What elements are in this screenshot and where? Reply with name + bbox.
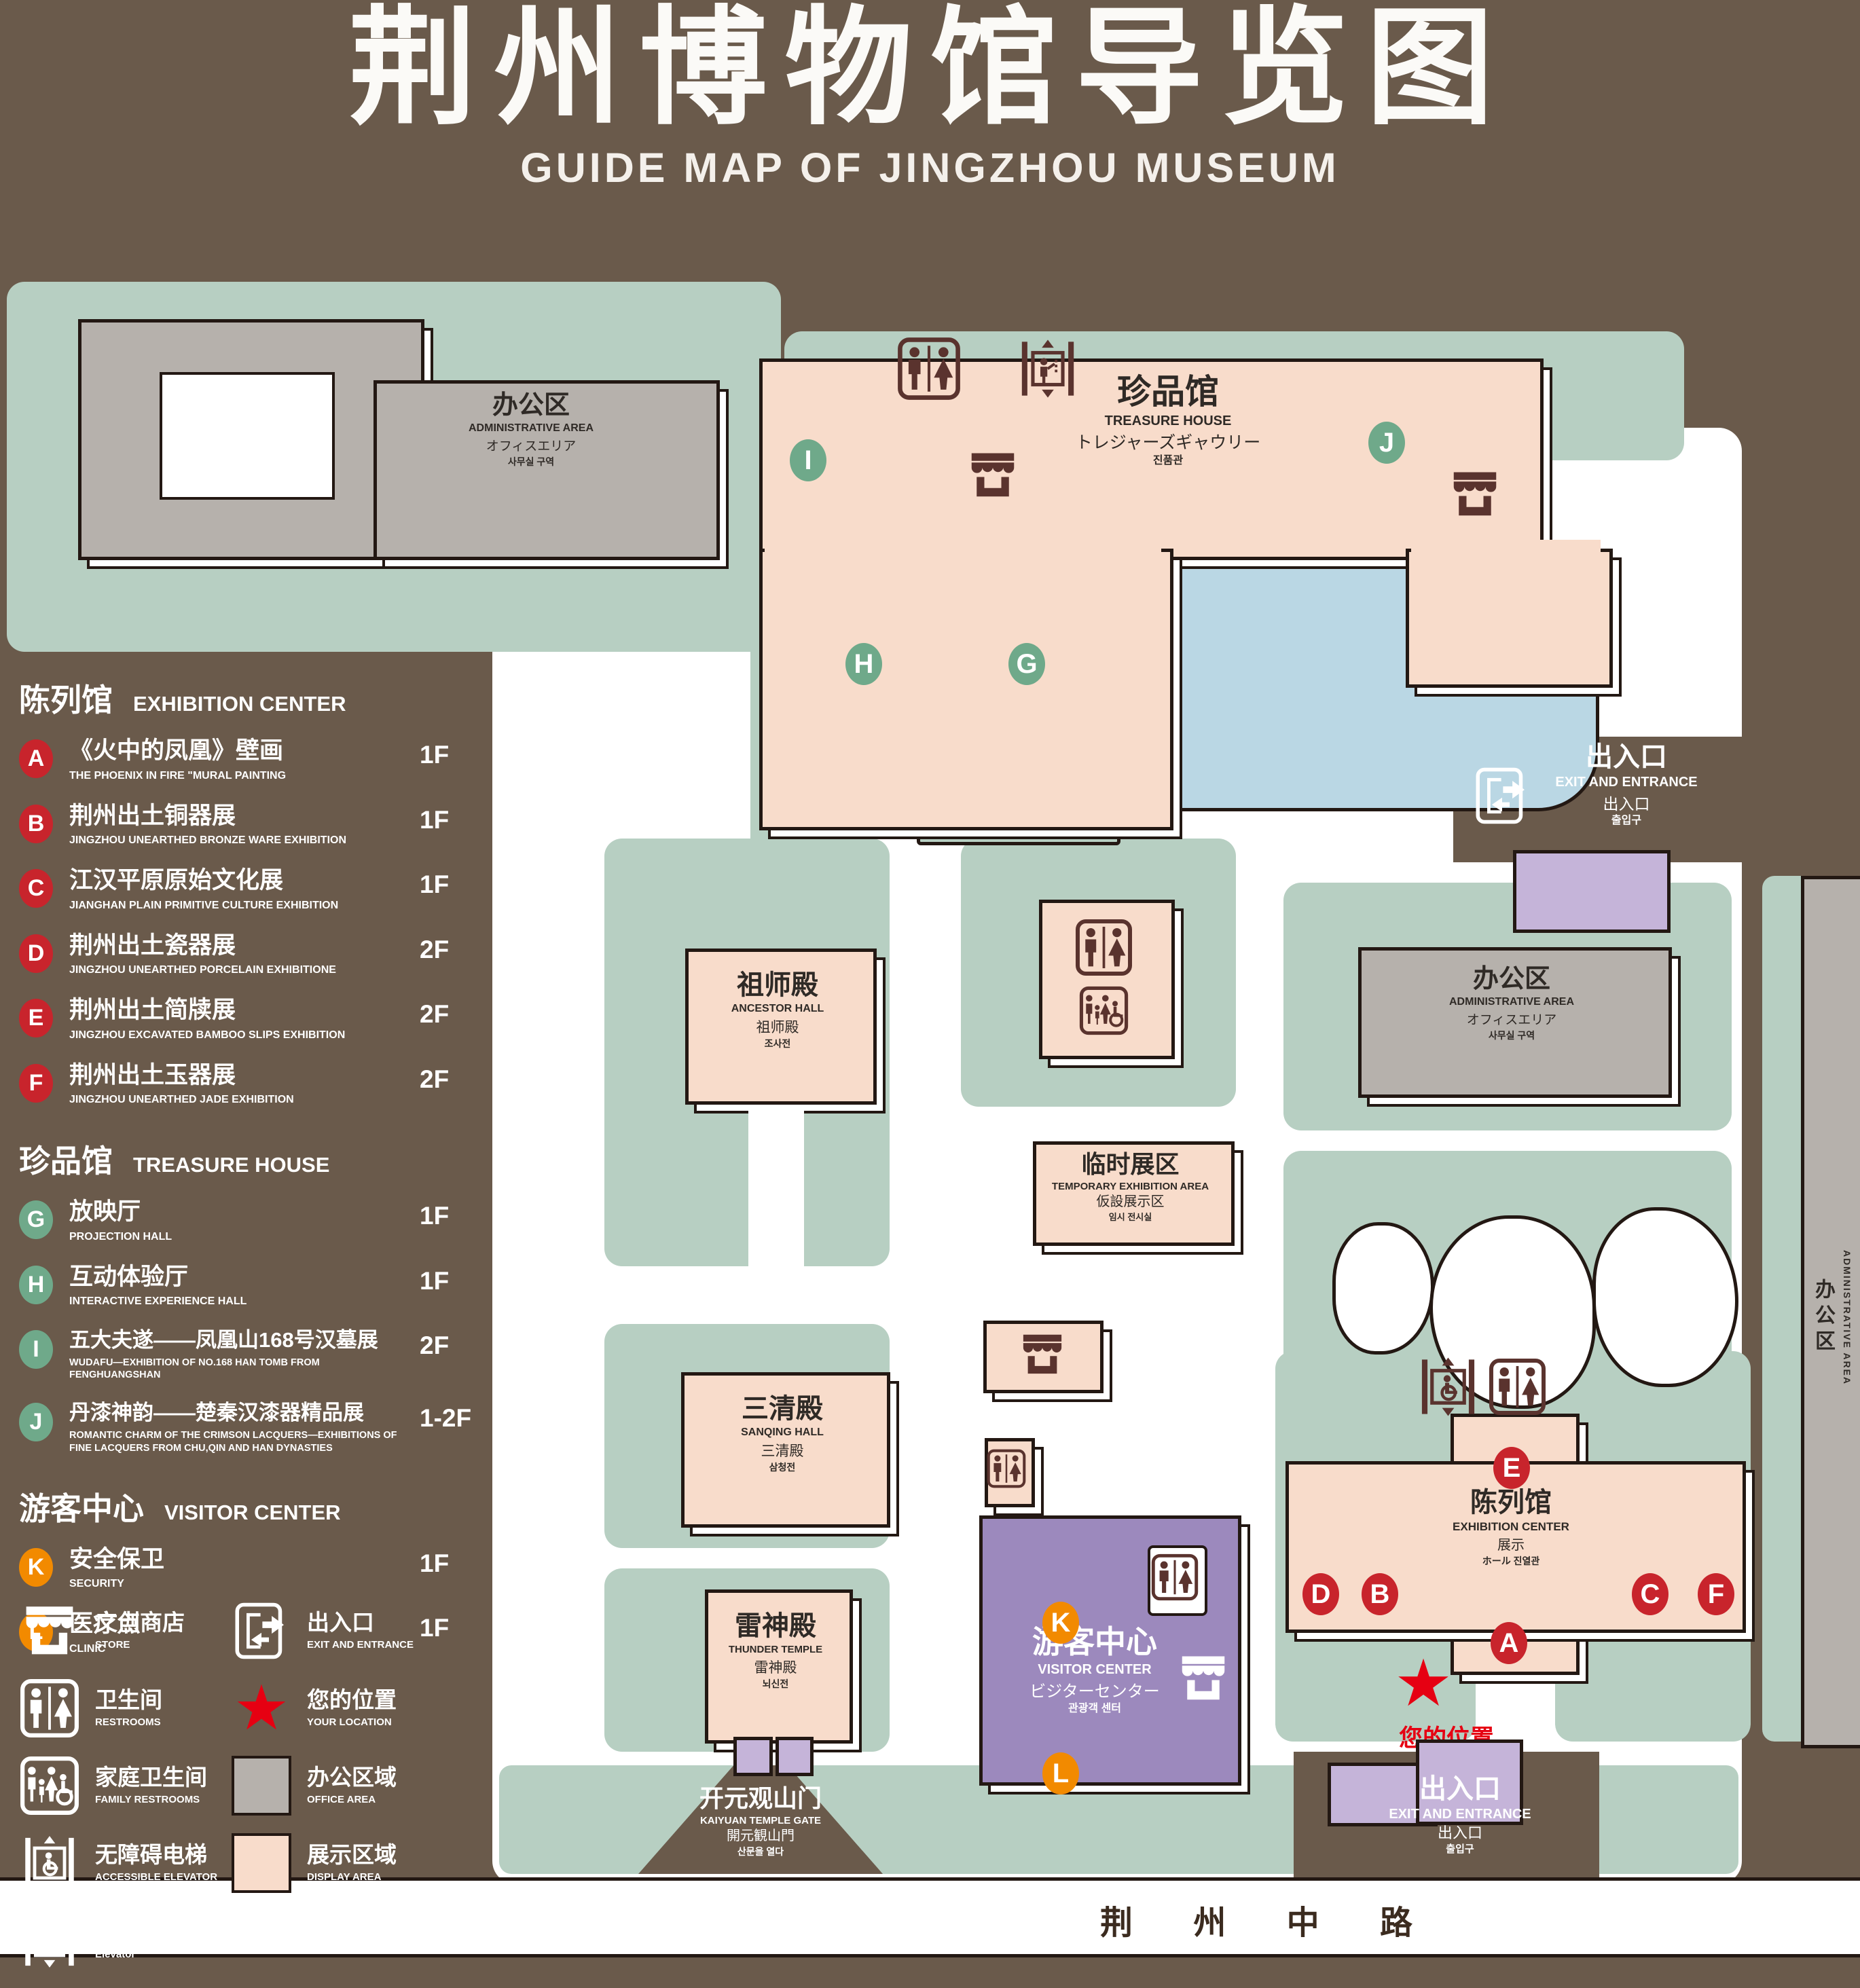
treasure-house-left-wing: [759, 549, 1173, 830]
marker-e: E: [19, 999, 53, 1037]
legend-symbol-store: 文创商店STORE: [19, 1597, 231, 1665]
restrooms-icon: [987, 1449, 1026, 1488]
legend-item-d: D 荆州出土瓷器展JINGZHOU UNEARTHED PORCELAIN EX…: [19, 933, 478, 978]
legend-item-k: K 安全保卫SECURITY 1F: [19, 1547, 478, 1591]
exit-right-building: [1513, 850, 1671, 933]
visitor-center-label: 游客中心 VISITOR CENTER ビジターセンター 관광객 센터: [986, 1624, 1203, 1716]
marker-k: K: [19, 1548, 53, 1587]
legend-item-b: B 荆州出土铜器展JINGZHOU UNEARTHED BRONZE WARE …: [19, 803, 478, 848]
store-icon: [19, 1600, 80, 1661]
legend-item-a: A 《火中的凤凰》壁画THE PHOENIX IN FIRE "MURAL PA…: [19, 738, 478, 783]
treasure-house-seam1: [765, 540, 1161, 560]
marker-d: D: [19, 934, 53, 973]
legend-item-g: G 放映厅PROJECTION HALL 1F: [19, 1199, 478, 1244]
map-marker-a: A: [1491, 1622, 1527, 1664]
floor-badge: 1-2F: [420, 1404, 478, 1433]
exit-icon: [231, 1600, 292, 1661]
legend-symbols: 文创商店STORE 出入口EXIT AND ENTRANCE 卫生间RESTRO…: [19, 1597, 488, 1974]
map-marker-k: K: [1042, 1602, 1079, 1644]
restrooms-icon: [19, 1678, 80, 1739]
map-marker-j: J: [1368, 422, 1405, 464]
page-title: 荆州博物馆导览图: [0, 1, 1860, 135]
marker-h: H: [19, 1266, 53, 1304]
legend-item-c: C 江汉平原原始文化展JIANGHAN PLAIN PRIMITIVE CULT…: [19, 868, 478, 913]
store-icon: [966, 448, 1020, 502]
accessible-elevator-icon: [1416, 1355, 1480, 1419]
exit-icon: [1472, 766, 1532, 826]
store-icon: [1176, 1651, 1230, 1706]
path-below-ancestor: [748, 1108, 804, 1319]
legend-section-treasure-house: 珍品馆 TREASURE HOUSE: [19, 1137, 478, 1181]
sanqing-hall-label: 三清殿 SANQING HALL 三清殿 삼청전: [685, 1393, 880, 1473]
gate-pillar-left: [733, 1737, 773, 1776]
legend-symbol-family-restrooms: 家庭卫生间FAMILY RESTROOMS: [19, 1752, 231, 1820]
map-marker-e: E: [1493, 1447, 1530, 1489]
legend-symbol-exit: 出入口EXIT AND ENTRANCE: [231, 1597, 481, 1665]
office-area-swatch: [231, 1755, 292, 1816]
ancestor-hall-label: 祖师殿 ANCESTOR HALL 祖师殿 조사전: [689, 970, 867, 1050]
store-icon: [1448, 467, 1502, 521]
display-area-swatch: [231, 1833, 292, 1894]
accessible-elevator-icon: [19, 1833, 80, 1894]
admin-right-label: 办公区 ADMINISTRATIVE AREA オフィスエリア 사무실 구역: [1362, 964, 1662, 1041]
floor-badge: 1F: [420, 1549, 478, 1578]
restrooms-icon: [1151, 1553, 1199, 1601]
marker-c: C: [19, 869, 53, 908]
floor-badge: 1F: [420, 1267, 478, 1295]
marker-b: B: [19, 805, 53, 843]
gate-label: 开元观山门 KAIYUAN TEMPLE GATE 開元観山門 산문을 열다: [652, 1784, 869, 1858]
your-location-star-icon: ★: [231, 1678, 292, 1739]
floor-badge: 2F: [420, 1065, 478, 1094]
guide-map-page: 荆州博物馆导览图 GUIDE MAP OF JINGZHOU MUSEUM 办公…: [0, 0, 1860, 1988]
admin-topleft-label: 办公区 ADMINISTRATIVE AREA オフィスエリア 사무실 구역: [361, 390, 701, 467]
map-marker-d: D: [1302, 1573, 1339, 1615]
family-restrooms-icon: [1079, 986, 1129, 1035]
legend-section-visitor-center: 游客中心 VISITOR CENTER: [19, 1484, 478, 1529]
elevator-icon: [1016, 337, 1080, 401]
exit-bottom-label: 出入口 EXIT AND ENTRANCE 出入口 출입구: [1351, 1773, 1569, 1855]
restrooms-icon: [897, 337, 961, 401]
store-icon: [1018, 1330, 1067, 1379]
legend-symbol-display-area: 展示区域DISPLAY AREA: [231, 1829, 481, 1897]
exit-right-label: 出入口 EXIT AND ENTRANCE 出入口 출입구: [1521, 741, 1732, 828]
legend-symbol-office-area: 办公区域OFFICE AREA: [231, 1752, 481, 1820]
page-subtitle: GUIDE MAP OF JINGZHOU MUSEUM: [0, 144, 1860, 191]
legend-item-e: E 荆州出土简牍展JINGZHOU EXCAVATED BAMBOO SLIPS…: [19, 997, 478, 1042]
legend-symbol-elevator: 电梯Elevator: [19, 1907, 231, 1974]
map-marker-g: G: [1008, 643, 1045, 685]
legend-panel: 陈列馆 EXHIBITION CENTER A 《火中的凤凰》壁画THE PHO…: [19, 676, 478, 1676]
floor-badge: 2F: [420, 936, 478, 964]
exhibition-center-label: 陈列馆 EXHIBITION CENTER 展示 ホール 진열관: [1385, 1487, 1637, 1567]
treasure-house-right-wing: [1406, 549, 1613, 688]
marker-i: I: [19, 1330, 53, 1369]
floor-badge: 1F: [420, 806, 478, 834]
restrooms-icon: [1489, 1358, 1546, 1416]
marker-g: G: [19, 1200, 53, 1239]
marker-j: J: [19, 1403, 53, 1441]
legend-symbol-your-location: ★ 您的位置YOUR LOCATION: [231, 1674, 481, 1742]
map-marker-l: L: [1042, 1752, 1079, 1794]
floor-badge: 1F: [420, 741, 478, 769]
marker-a: A: [19, 739, 53, 778]
thunder-temple-label: 雷神殿 THUNDER TEMPLE 雷神殿 뇌신전: [708, 1610, 843, 1689]
floor-badge: 1F: [420, 1202, 478, 1230]
family-restrooms-icon: [19, 1755, 80, 1816]
legend-item-f: F 荆州出土玉器展JINGZHOU UNEARTHED JADE EXHIBIT…: [19, 1063, 478, 1107]
treasure-house-seam2: [1411, 540, 1601, 560]
road-label: 荆 州 中 路: [1100, 1896, 1438, 1943]
map-marker-i: I: [790, 439, 826, 481]
gate-pillar-right: [776, 1737, 814, 1776]
map-marker-c: C: [1632, 1573, 1668, 1615]
admin-courtyard: [160, 372, 335, 500]
your-location-star-icon: ★: [1394, 1651, 1453, 1716]
floor-badge: 2F: [420, 1000, 478, 1029]
map-marker-b: B: [1362, 1573, 1398, 1615]
map-marker-h: H: [845, 643, 882, 685]
legend-item-h: H 互动体验厅INTERACTIVE EXPERIENCE HALL 1F: [19, 1264, 478, 1309]
elevator-icon: [19, 1910, 80, 1971]
floor-badge: 1F: [420, 870, 478, 899]
floor-badge: 2F: [420, 1331, 478, 1360]
legend-item-i: I 五大夫遂——凤凰山168号汉墓展WUDAFU—EXHIBITION OF N…: [19, 1329, 478, 1381]
legend-symbol-accessible-elevator: 无障碍电梯ACCESSIBLE ELEVATOR: [19, 1829, 231, 1897]
marker-f: F: [19, 1064, 53, 1103]
restrooms-icon: [1075, 919, 1133, 976]
temporary-exhibition-label: 临时展区 TEMPORARY EXHIBITION AREA 仮設展示区 임시 …: [1036, 1150, 1224, 1222]
legend-section-exhibition-center: 陈列馆 EXHIBITION CENTER: [19, 676, 478, 720]
legend-item-j: J 丹漆神韵——楚秦汉漆器精品展ROMANTIC CHARM OF THE CR…: [19, 1401, 478, 1454]
admin-strip-label: 办公区 ADMINISTRATIVE AREA オフィスエリア 사무실 구역: [1806, 1059, 1857, 1575]
legend-symbol-restrooms: 卫生间RESTROOMS: [19, 1674, 231, 1742]
map-marker-f: F: [1698, 1573, 1734, 1615]
